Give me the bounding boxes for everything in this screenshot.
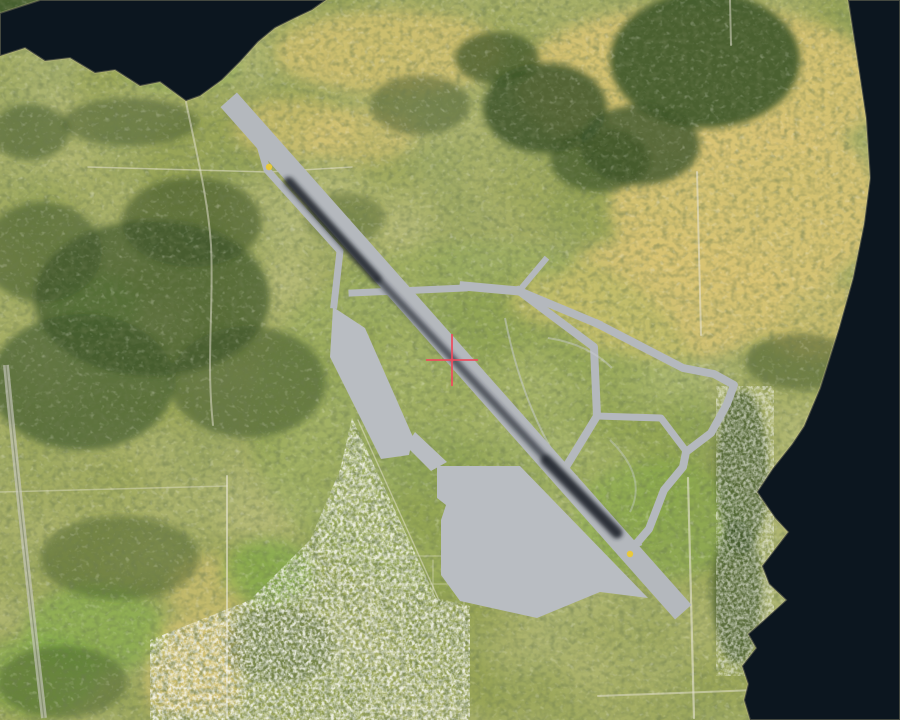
crosshair-center-dot xyxy=(450,358,454,362)
map-canvas[interactable] xyxy=(0,0,900,720)
satellite-map-view[interactable] xyxy=(0,0,900,720)
threshold-dot-north xyxy=(266,164,272,170)
threshold-dot-south xyxy=(627,551,633,557)
